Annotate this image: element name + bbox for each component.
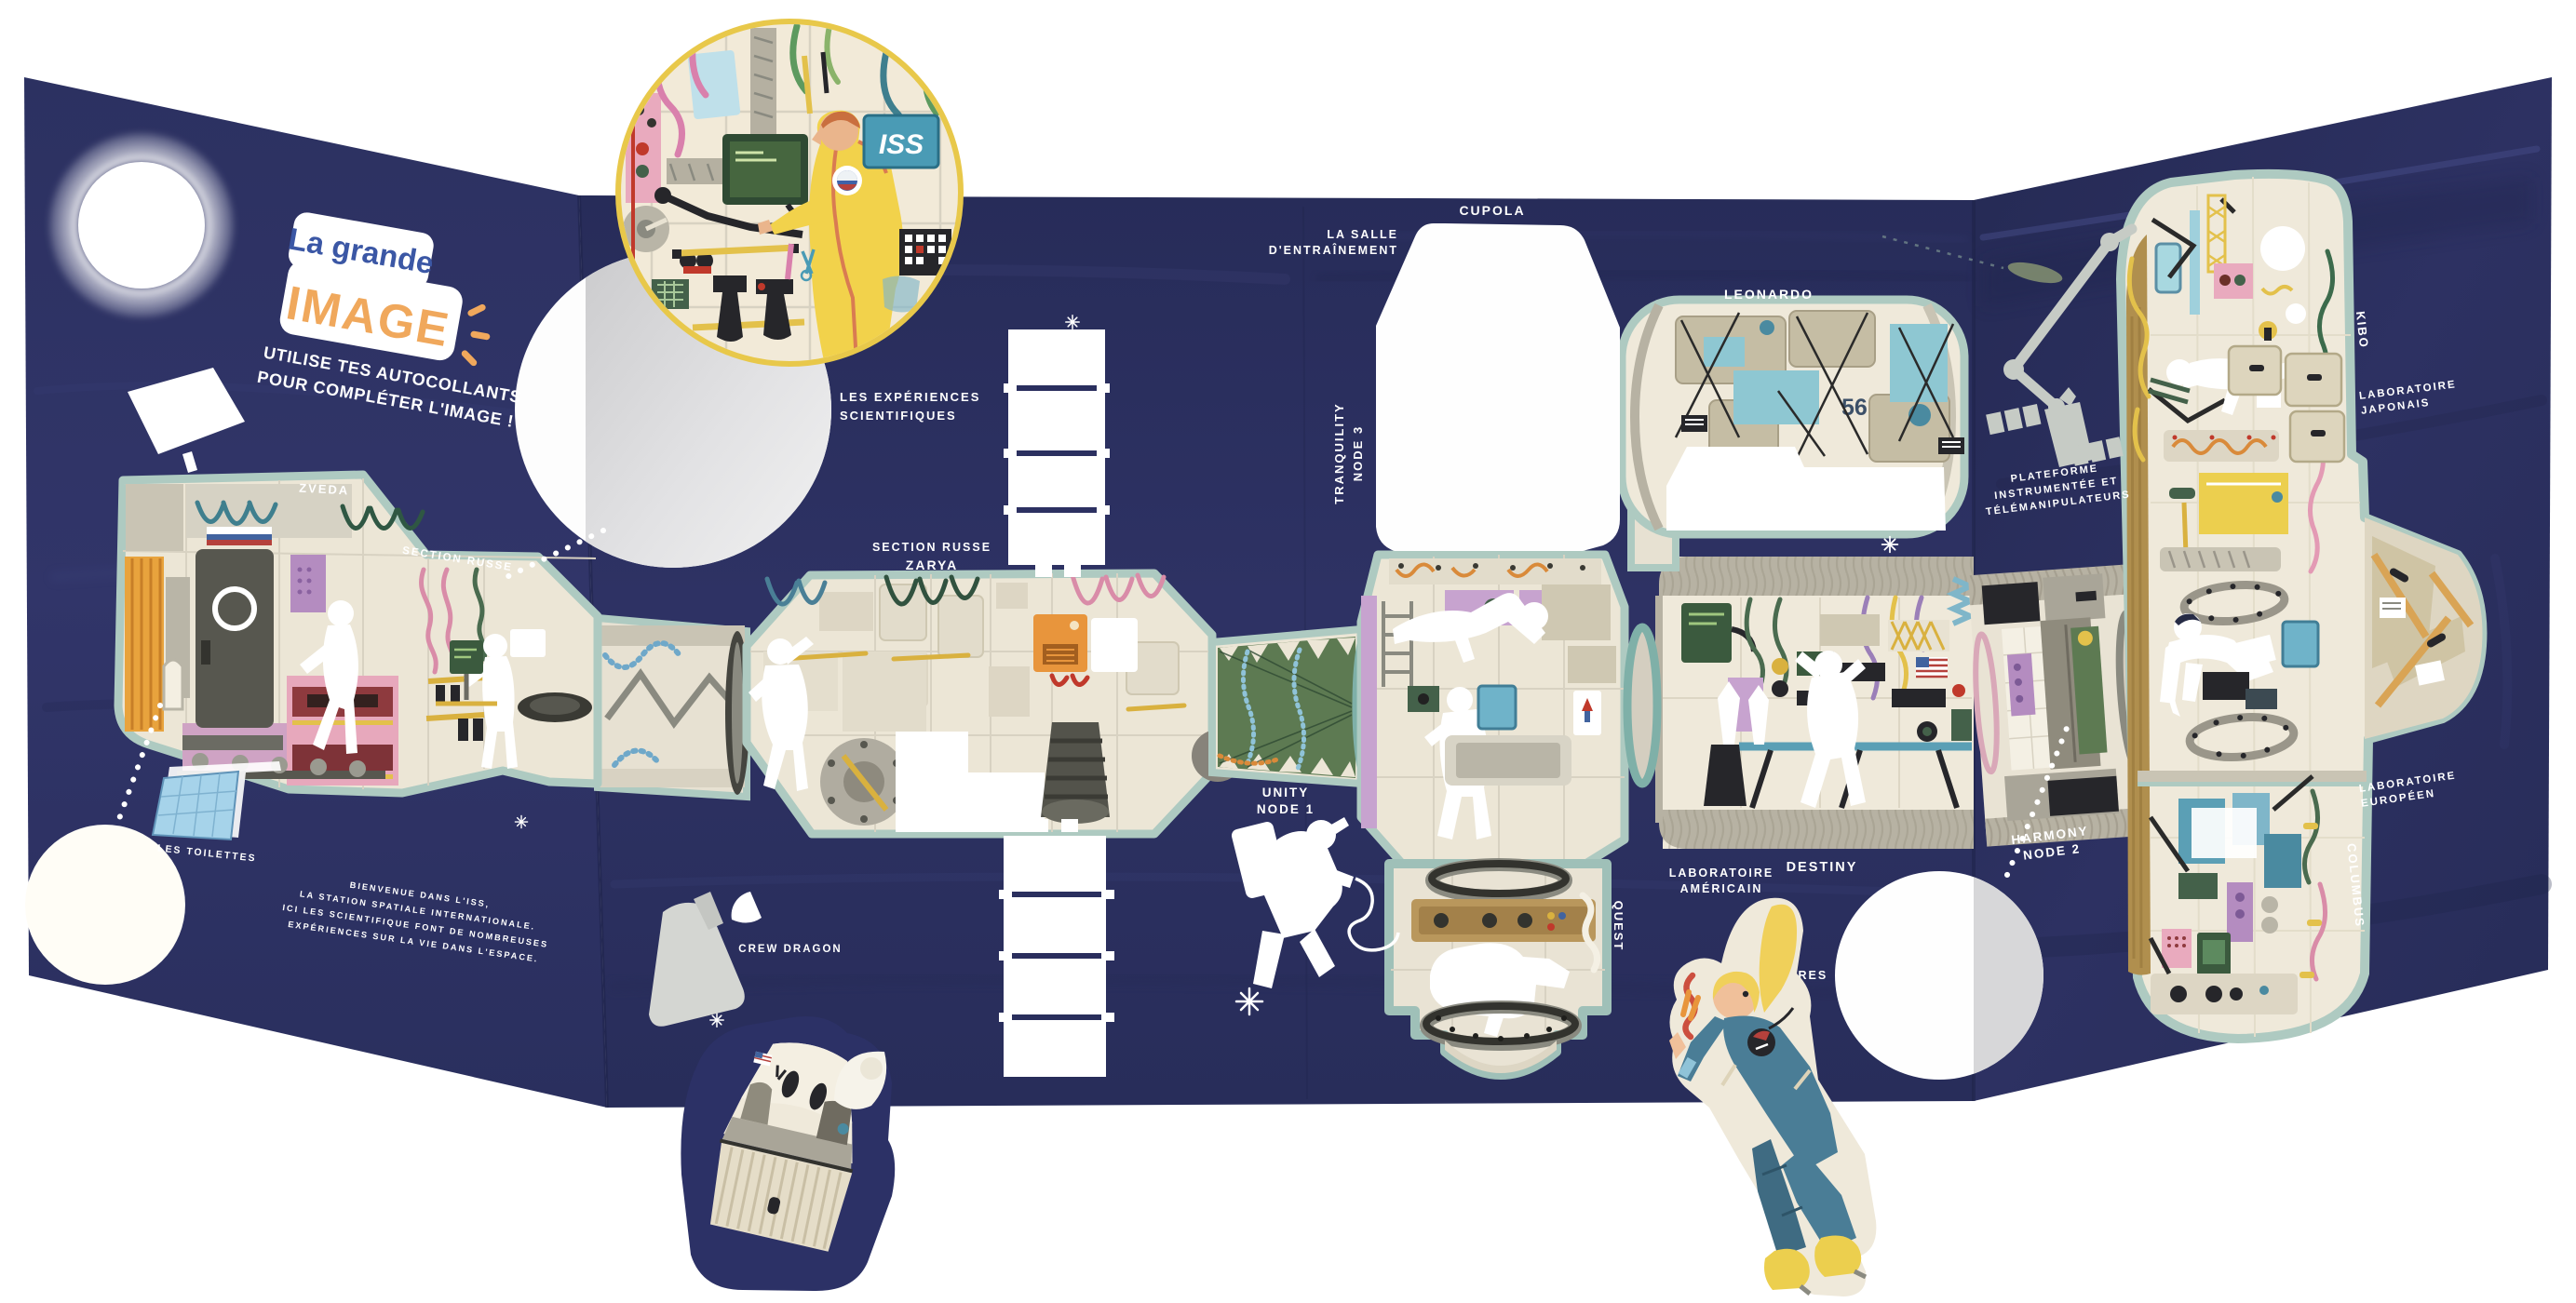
svg-text:CREW DRAGON: CREW DRAGON	[738, 944, 842, 955]
svg-text:NODE 3: NODE 3	[1351, 425, 1365, 481]
svg-text:LA SALLE: LA SALLE	[1327, 228, 1398, 241]
svg-text:AMÉRICAIN: AMÉRICAIN	[1680, 881, 1763, 895]
svg-text:UNITY: UNITY	[1262, 786, 1310, 799]
svg-text:CUPOLA: CUPOLA	[1459, 203, 1525, 218]
svg-text:ZVEDA: ZVEDA	[299, 481, 350, 498]
svg-text:TRANQUILITY: TRANQUILITY	[1332, 402, 1346, 504]
svg-text:SCIENTIFIQUES: SCIENTIFIQUES	[840, 409, 957, 423]
svg-text:56: 56	[1841, 395, 1868, 421]
svg-text:DESTINY: DESTINY	[1787, 860, 1858, 875]
svg-text:LEONARDO: LEONARDO	[1724, 287, 1814, 302]
svg-text:LES EXPÉRIENCES: LES EXPÉRIENCES	[840, 390, 980, 404]
svg-text:ZARYA: ZARYA	[906, 557, 958, 572]
svg-text:SECTION RUSSE: SECTION RUSSE	[872, 541, 991, 554]
svg-text:LABORATOIRE: LABORATOIRE	[1669, 866, 1774, 880]
svg-text:NODE 1: NODE 1	[1257, 802, 1315, 816]
svg-text:QUEST: QUEST	[1612, 901, 1625, 952]
svg-text:ISS: ISS	[879, 129, 924, 160]
svg-text:D'ENTRAÎNEMENT: D'ENTRAÎNEMENT	[1269, 243, 1398, 257]
